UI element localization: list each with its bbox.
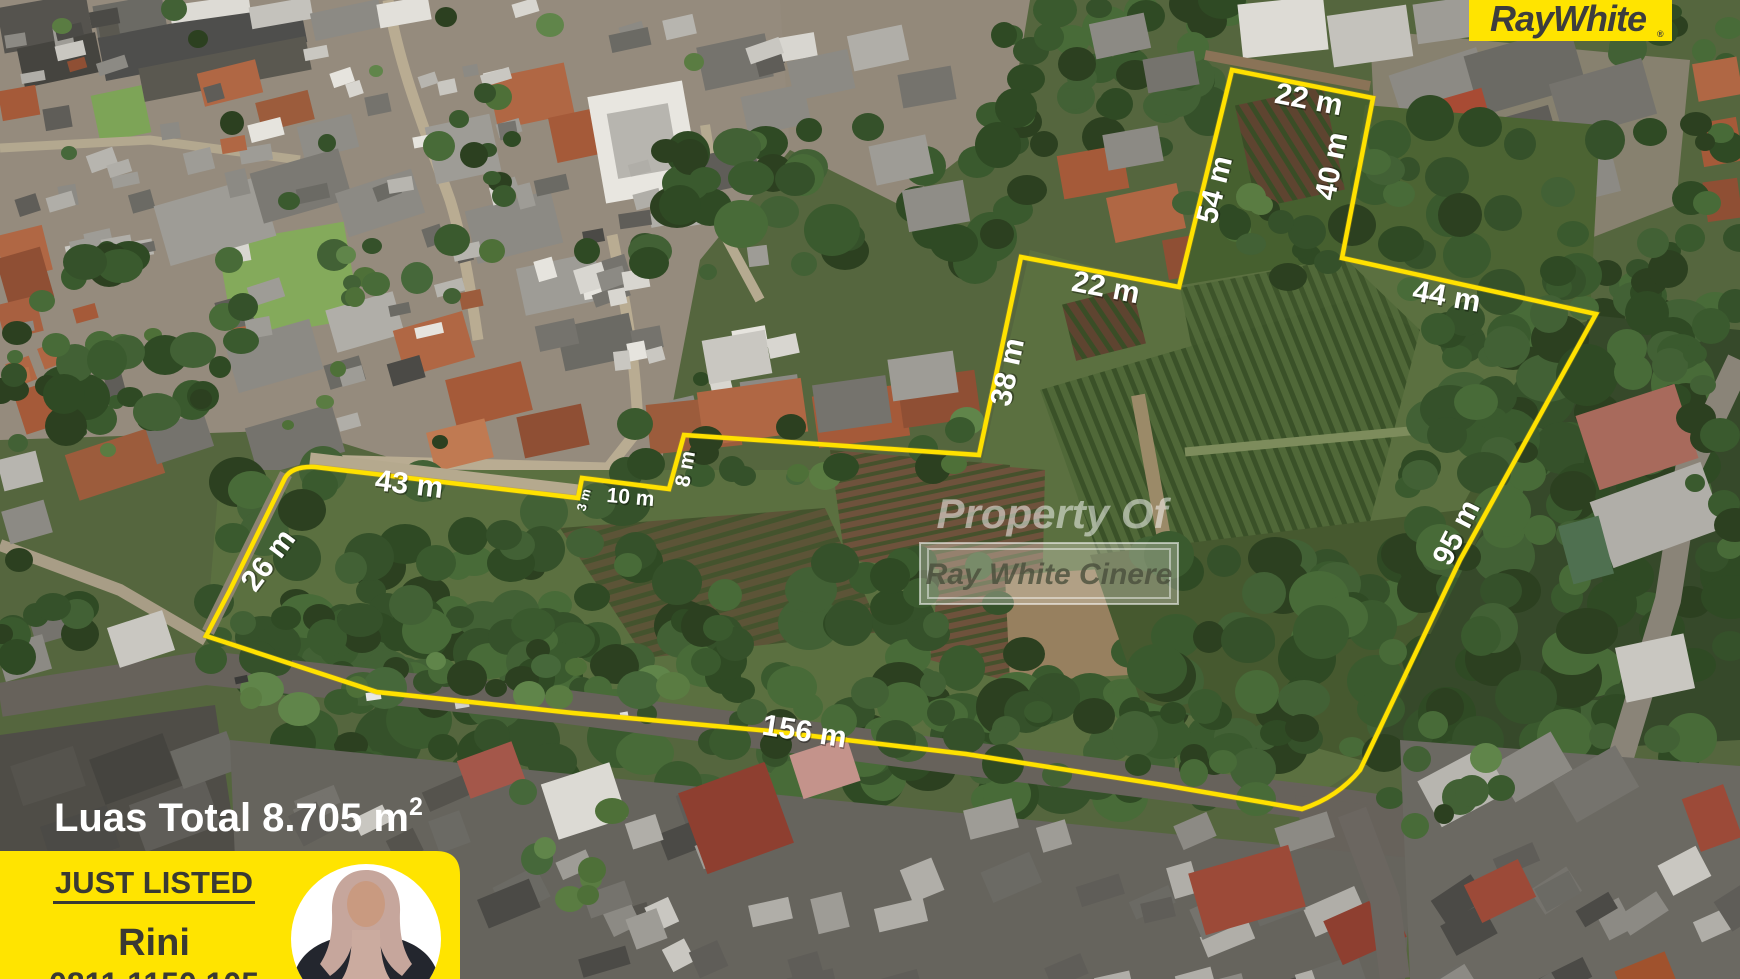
- svg-text:Rini: Rini: [118, 922, 190, 964]
- svg-text:Property Of: Property Of: [936, 490, 1171, 537]
- svg-text:JUST LISTED: JUST LISTED: [55, 865, 253, 900]
- svg-text:10 m: 10 m: [606, 484, 656, 511]
- svg-text:0811 1150 105: 0811 1150 105: [49, 966, 259, 979]
- svg-text:Luas Total 8.705 m2: Luas Total 8.705 m2: [54, 793, 423, 840]
- svg-text:Ray White Cinere: Ray White Cinere: [926, 558, 1173, 591]
- svg-text:®: ®: [1657, 29, 1664, 39]
- svg-text:RayWhite: RayWhite: [1490, 0, 1647, 39]
